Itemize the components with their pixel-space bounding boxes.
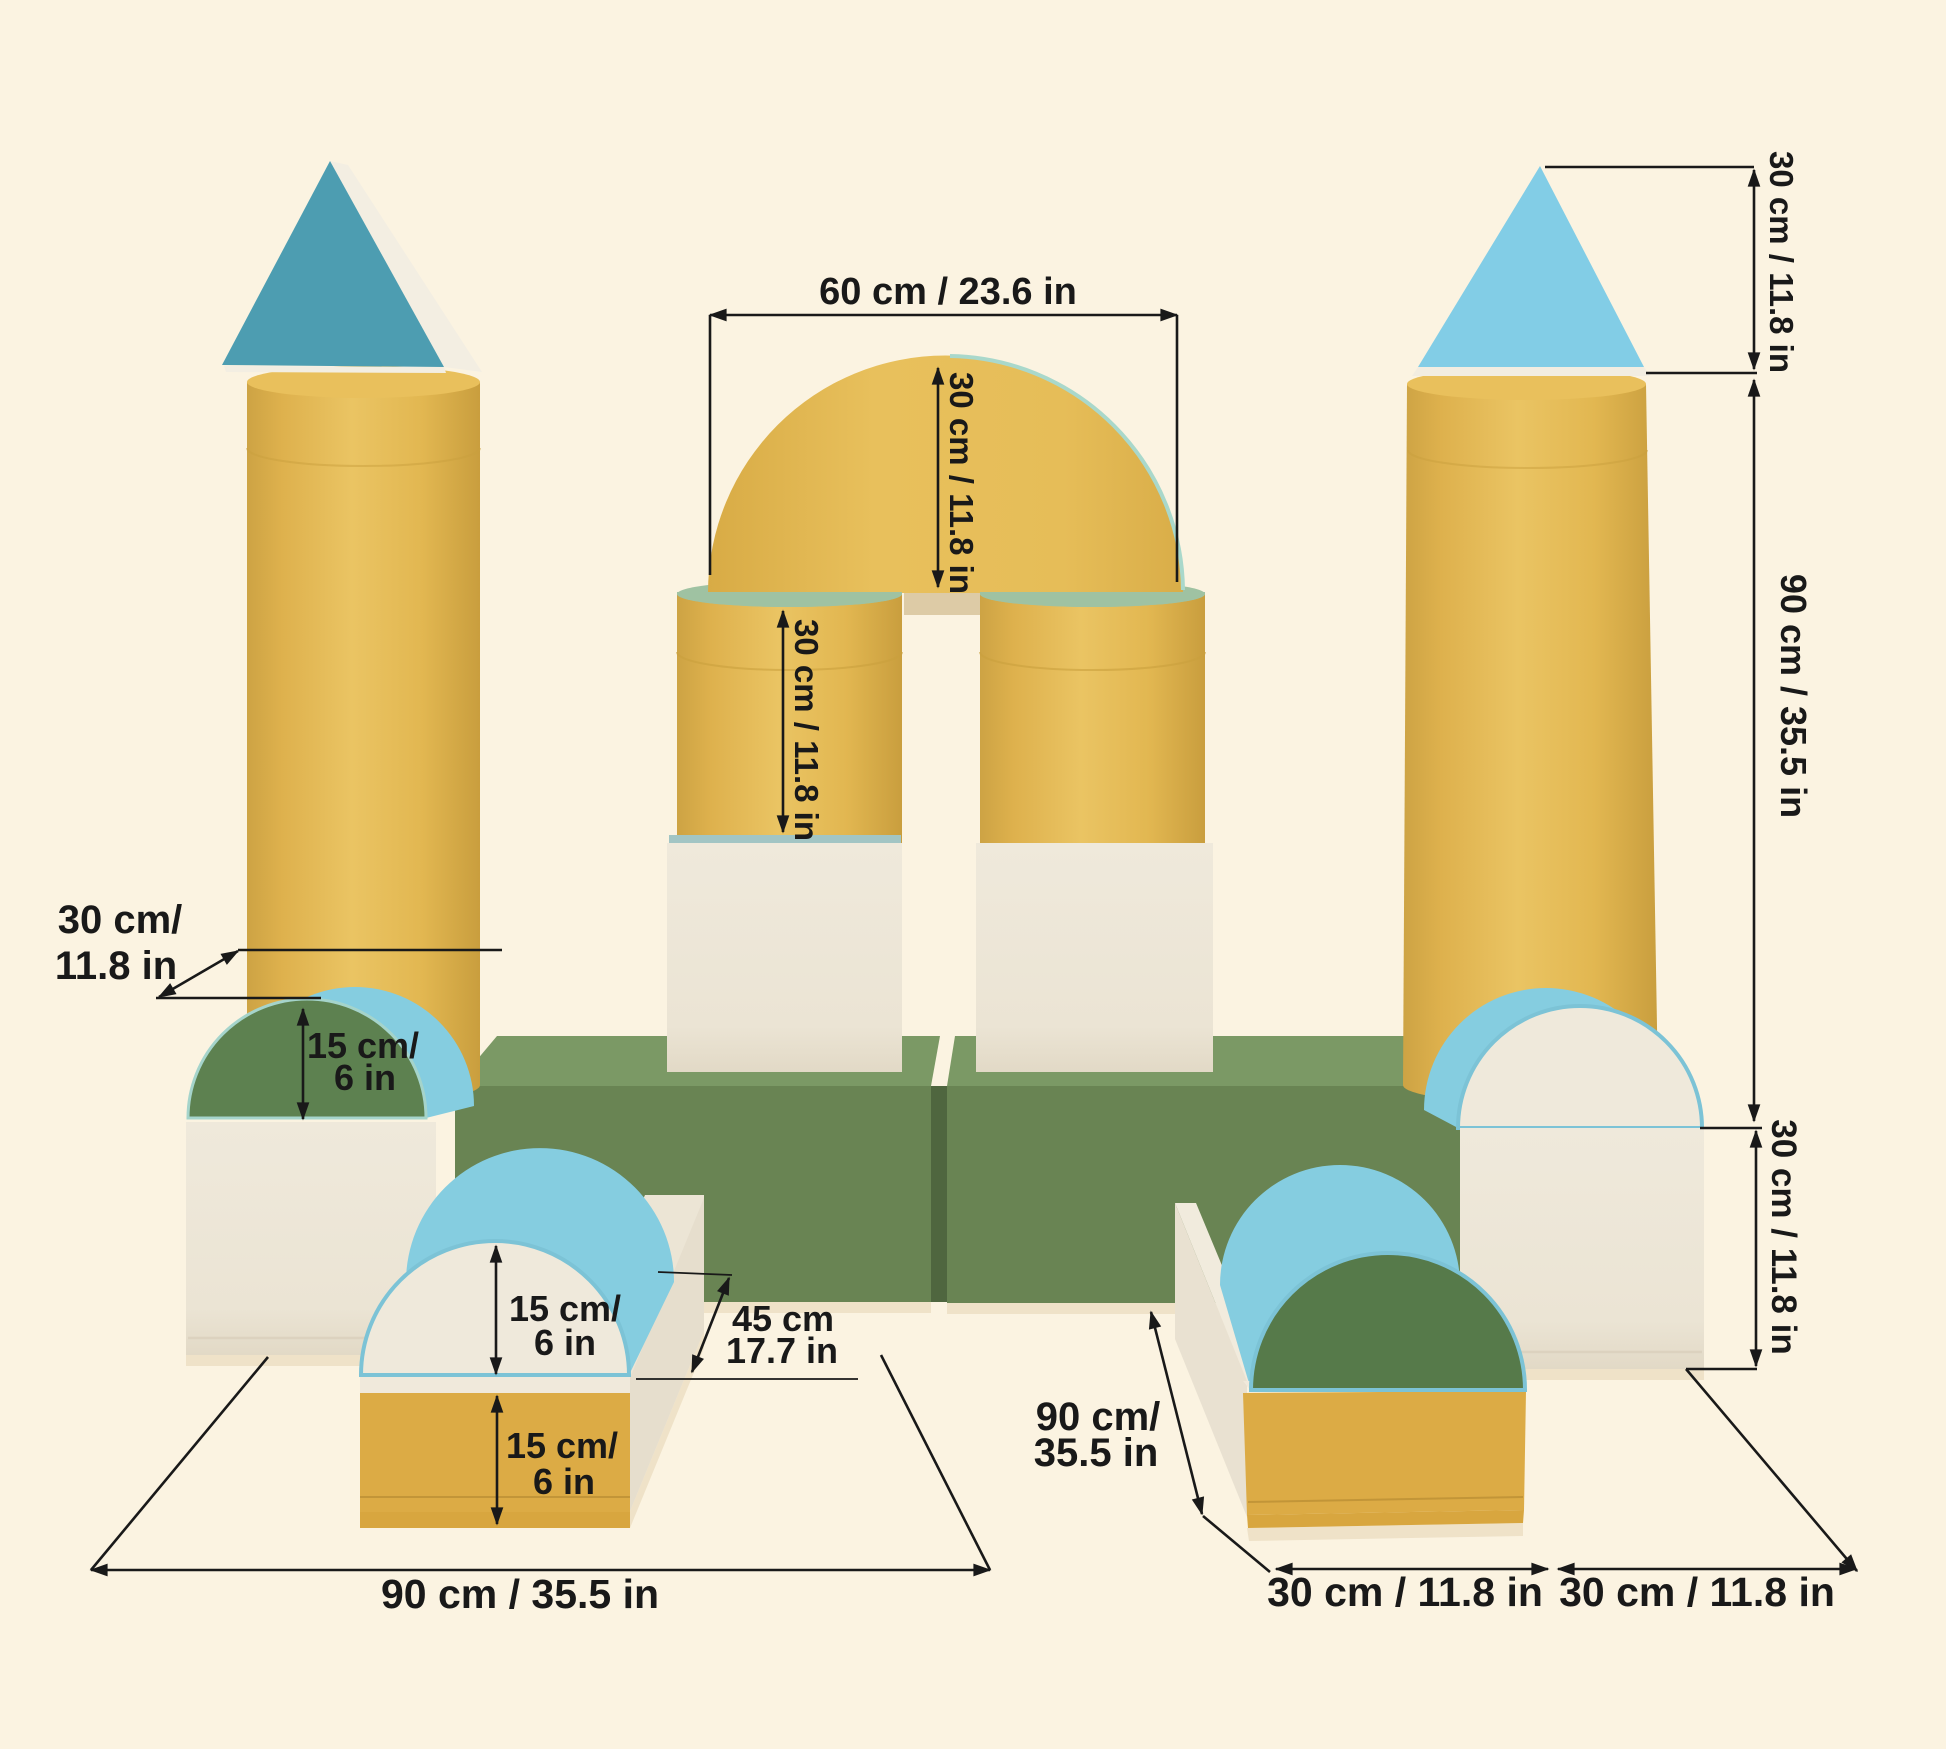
svg-text:90 cm / 35.5 in: 90 cm / 35.5 in (1773, 574, 1814, 818)
svg-text:6 in: 6 in (334, 1057, 396, 1098)
svg-text:11.8 in: 11.8 in (55, 944, 177, 988)
svg-text:30 cm / 11.8 in: 30 cm / 11.8 in (788, 619, 825, 841)
svg-text:15 cm/: 15 cm/ (506, 1425, 618, 1466)
svg-text:6 in: 6 in (533, 1461, 595, 1502)
svg-text:30 cm / 11.8 in: 30 cm / 11.8 in (1267, 1569, 1543, 1615)
svg-text:60 cm / 23.6 in: 60 cm / 23.6 in (819, 271, 1077, 313)
svg-text:35.5 in: 35.5 in (1034, 1431, 1159, 1475)
svg-text:17.7 in: 17.7 in (726, 1330, 838, 1371)
svg-text:30 cm / 11.8 in: 30 cm / 11.8 in (1559, 1569, 1835, 1615)
svg-text:90 cm / 35.5 in: 90 cm / 35.5 in (381, 1571, 659, 1617)
svg-text:30 cm / 11.8 in: 30 cm / 11.8 in (1764, 1119, 1803, 1354)
svg-text:30 cm/: 30 cm/ (58, 898, 183, 942)
svg-text:30 cm / 11.8 in: 30 cm / 11.8 in (943, 372, 980, 594)
svg-text:6 in: 6 in (534, 1322, 596, 1363)
svg-text:30 cm / 11.8 in: 30 cm / 11.8 in (1763, 151, 1800, 373)
